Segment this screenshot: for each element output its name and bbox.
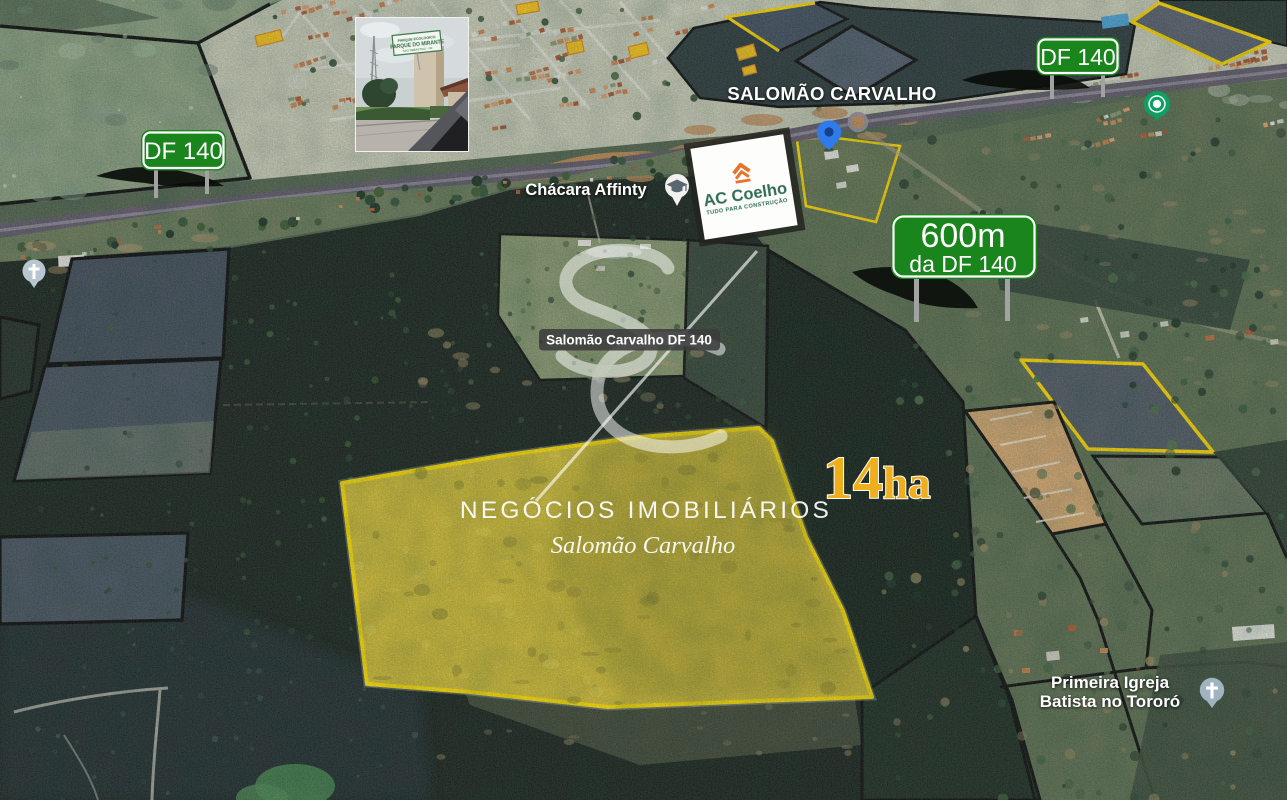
svg-text:Salomão Carvalho DF 140: Salomão Carvalho DF 140 (546, 333, 712, 348)
svg-text:SALOMÃO CARVALHO: SALOMÃO CARVALHO (727, 83, 936, 104)
svg-text:DF 140: DF 140 (1040, 44, 1115, 70)
svg-text:Batista no Tororó: Batista no Tororó (1040, 692, 1180, 711)
svg-text:NEGÓCIOS IMOBILIÁRIOS: NEGÓCIOS IMOBILIÁRIOS (460, 497, 832, 524)
svg-text:Primeira Igreja: Primeira Igreja (1051, 673, 1170, 692)
svg-text:DF 140: DF 140 (144, 138, 223, 165)
svg-text:Salomão Carvalho: Salomão Carvalho (551, 532, 735, 559)
svg-text:da DF 140: da DF 140 (909, 251, 1016, 277)
svg-text:600m: 600m (920, 217, 1005, 255)
svg-text:Chácara Affinty: Chácara Affinty (525, 181, 647, 199)
